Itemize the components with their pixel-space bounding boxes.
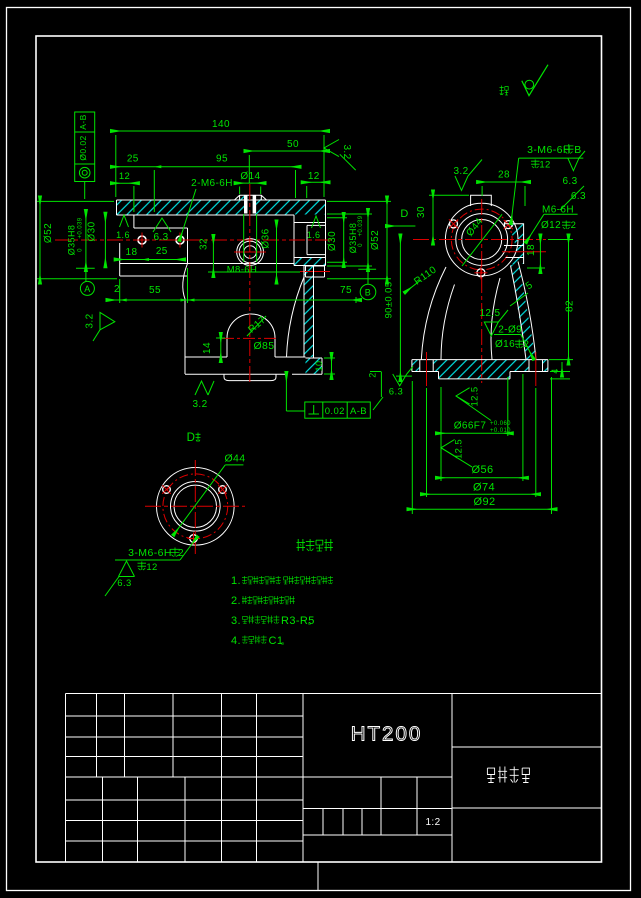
svg-text:10: 10 xyxy=(314,361,324,372)
svg-text:B: B xyxy=(574,144,581,156)
svg-text:4.: 4. xyxy=(231,635,241,647)
svg-text:HT200: HT200 xyxy=(351,723,423,746)
svg-text:30: 30 xyxy=(416,206,427,218)
svg-text:1.6: 1.6 xyxy=(116,230,130,240)
svg-text:12.5: 12.5 xyxy=(479,308,500,319)
svg-text:12.5: 12.5 xyxy=(470,386,481,406)
svg-text:1.: 1. xyxy=(231,575,241,587)
svg-text:Ø0.02: Ø0.02 xyxy=(78,135,88,160)
svg-text:1:2: 1:2 xyxy=(425,817,440,828)
svg-text:2-M6-6H: 2-M6-6H xyxy=(191,178,233,189)
svg-text:3.2: 3.2 xyxy=(341,144,352,159)
svg-text:Ø30: Ø30 xyxy=(327,231,338,251)
svg-text:0: 0 xyxy=(78,248,84,252)
svg-text:Ø66F7: Ø66F7 xyxy=(454,421,487,432)
svg-text:25: 25 xyxy=(156,246,168,257)
svg-text:3.2: 3.2 xyxy=(192,399,207,410)
svg-text:6.3: 6.3 xyxy=(117,578,131,589)
svg-text:2.: 2. xyxy=(231,595,241,607)
svg-text:18: 18 xyxy=(526,244,537,256)
svg-text:1.6: 1.6 xyxy=(307,230,321,240)
svg-text:+0.060: +0.060 xyxy=(490,421,511,427)
svg-text:A-B: A-B xyxy=(350,406,367,417)
svg-text:3.2: 3.2 xyxy=(85,313,96,328)
svg-text:3.2: 3.2 xyxy=(453,166,468,177)
svg-text:14: 14 xyxy=(202,342,213,354)
svg-text:2-Ø9: 2-Ø9 xyxy=(498,325,522,336)
svg-text:D: D xyxy=(400,208,408,220)
svg-text:32: 32 xyxy=(199,238,210,250)
svg-text:Ø74: Ø74 xyxy=(473,482,495,494)
svg-text:Ø12: Ø12 xyxy=(541,220,561,231)
svg-text:+0.010: +0.010 xyxy=(490,428,511,434)
svg-text:6.3: 6.3 xyxy=(562,176,577,187)
svg-text:75: 75 xyxy=(340,285,352,296)
svg-text:2: 2 xyxy=(368,372,378,377)
svg-text:28: 28 xyxy=(498,170,510,181)
svg-text:55: 55 xyxy=(149,285,161,296)
svg-text:12: 12 xyxy=(119,171,130,182)
svg-text:Ø92: Ø92 xyxy=(474,496,496,508)
svg-text:Ø30: Ø30 xyxy=(87,221,98,241)
svg-text:。: 。 xyxy=(308,617,316,626)
svg-text:+0.039: +0.039 xyxy=(78,217,84,238)
svg-text:B: B xyxy=(365,288,371,298)
svg-text:Ø52: Ø52 xyxy=(370,230,381,250)
svg-text:2: 2 xyxy=(178,548,184,559)
svg-text:90±0.05: 90±0.05 xyxy=(384,281,395,318)
svg-text:2: 2 xyxy=(571,220,577,231)
svg-text:A: A xyxy=(84,284,90,294)
svg-text:12: 12 xyxy=(308,171,320,182)
svg-text:0: 0 xyxy=(358,243,364,247)
svg-text:M8-6H: M8-6H xyxy=(227,265,258,276)
svg-text:Ø14: Ø14 xyxy=(240,171,260,182)
svg-text:3.: 3. xyxy=(231,615,241,627)
svg-text:Ø44: Ø44 xyxy=(224,453,245,465)
svg-text:A-B: A-B xyxy=(78,114,88,129)
svg-text:Ø56: Ø56 xyxy=(472,464,494,476)
svg-text:。: 。 xyxy=(281,637,289,646)
svg-text:0.02: 0.02 xyxy=(325,406,345,417)
svg-text:6.3: 6.3 xyxy=(389,387,403,398)
svg-text:Ø85: Ø85 xyxy=(253,340,274,352)
svg-text:12: 12 xyxy=(539,160,550,171)
svg-text:18: 18 xyxy=(126,247,138,258)
svg-text:140: 140 xyxy=(212,119,230,130)
svg-text:82: 82 xyxy=(565,300,576,312)
svg-text:95: 95 xyxy=(216,154,228,165)
svg-text:Ø36: Ø36 xyxy=(261,228,272,248)
svg-text:2: 2 xyxy=(114,284,120,295)
svg-text:+0.039: +0.039 xyxy=(358,215,364,236)
svg-text:Ø16: Ø16 xyxy=(495,339,515,350)
svg-text:D: D xyxy=(187,432,196,444)
svg-text:Ø35H8: Ø35H8 xyxy=(348,223,358,254)
svg-text:25: 25 xyxy=(127,154,139,165)
svg-text:2: 2 xyxy=(524,339,530,350)
svg-text:Ø52: Ø52 xyxy=(43,223,54,243)
svg-text:3-M6-6H: 3-M6-6H xyxy=(128,547,172,559)
svg-text:Ø35H8: Ø35H8 xyxy=(67,225,77,256)
svg-text:6.3: 6.3 xyxy=(153,232,168,243)
svg-text:12: 12 xyxy=(146,562,157,573)
svg-text:50: 50 xyxy=(287,139,299,150)
